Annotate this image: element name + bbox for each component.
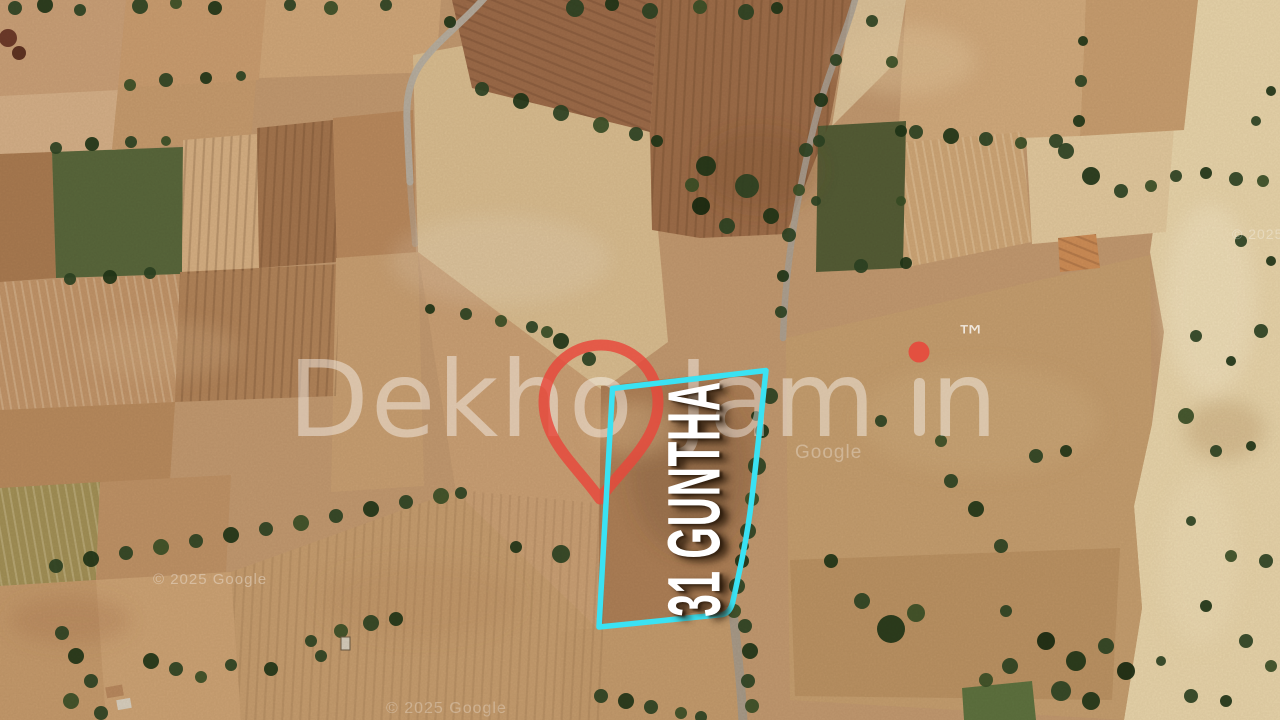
brand-text-left: Dekho — [288, 339, 635, 461]
brand-letter-i-stem — [914, 378, 925, 436]
trademark-symbol: ™ — [956, 320, 986, 355]
satellite-imagery: Dekho Jam n ™ — [0, 0, 1280, 720]
plot-area-label: 31 GUNTHA — [652, 381, 737, 617]
imagery-credit: © 2025 Google — [1232, 226, 1280, 242]
imagery-credit: Google — [795, 442, 862, 464]
satellite-map-view[interactable]: Dekho Jam n ™ 31 GUNTHA © 2025 Google © … — [0, 0, 1280, 720]
brand-letter-i-dot — [909, 342, 930, 363]
brand-text-right-b: n — [931, 339, 998, 461]
imagery-credit: © 2025 Google — [386, 700, 507, 718]
imagery-credit: © 2025 Google — [153, 571, 267, 588]
